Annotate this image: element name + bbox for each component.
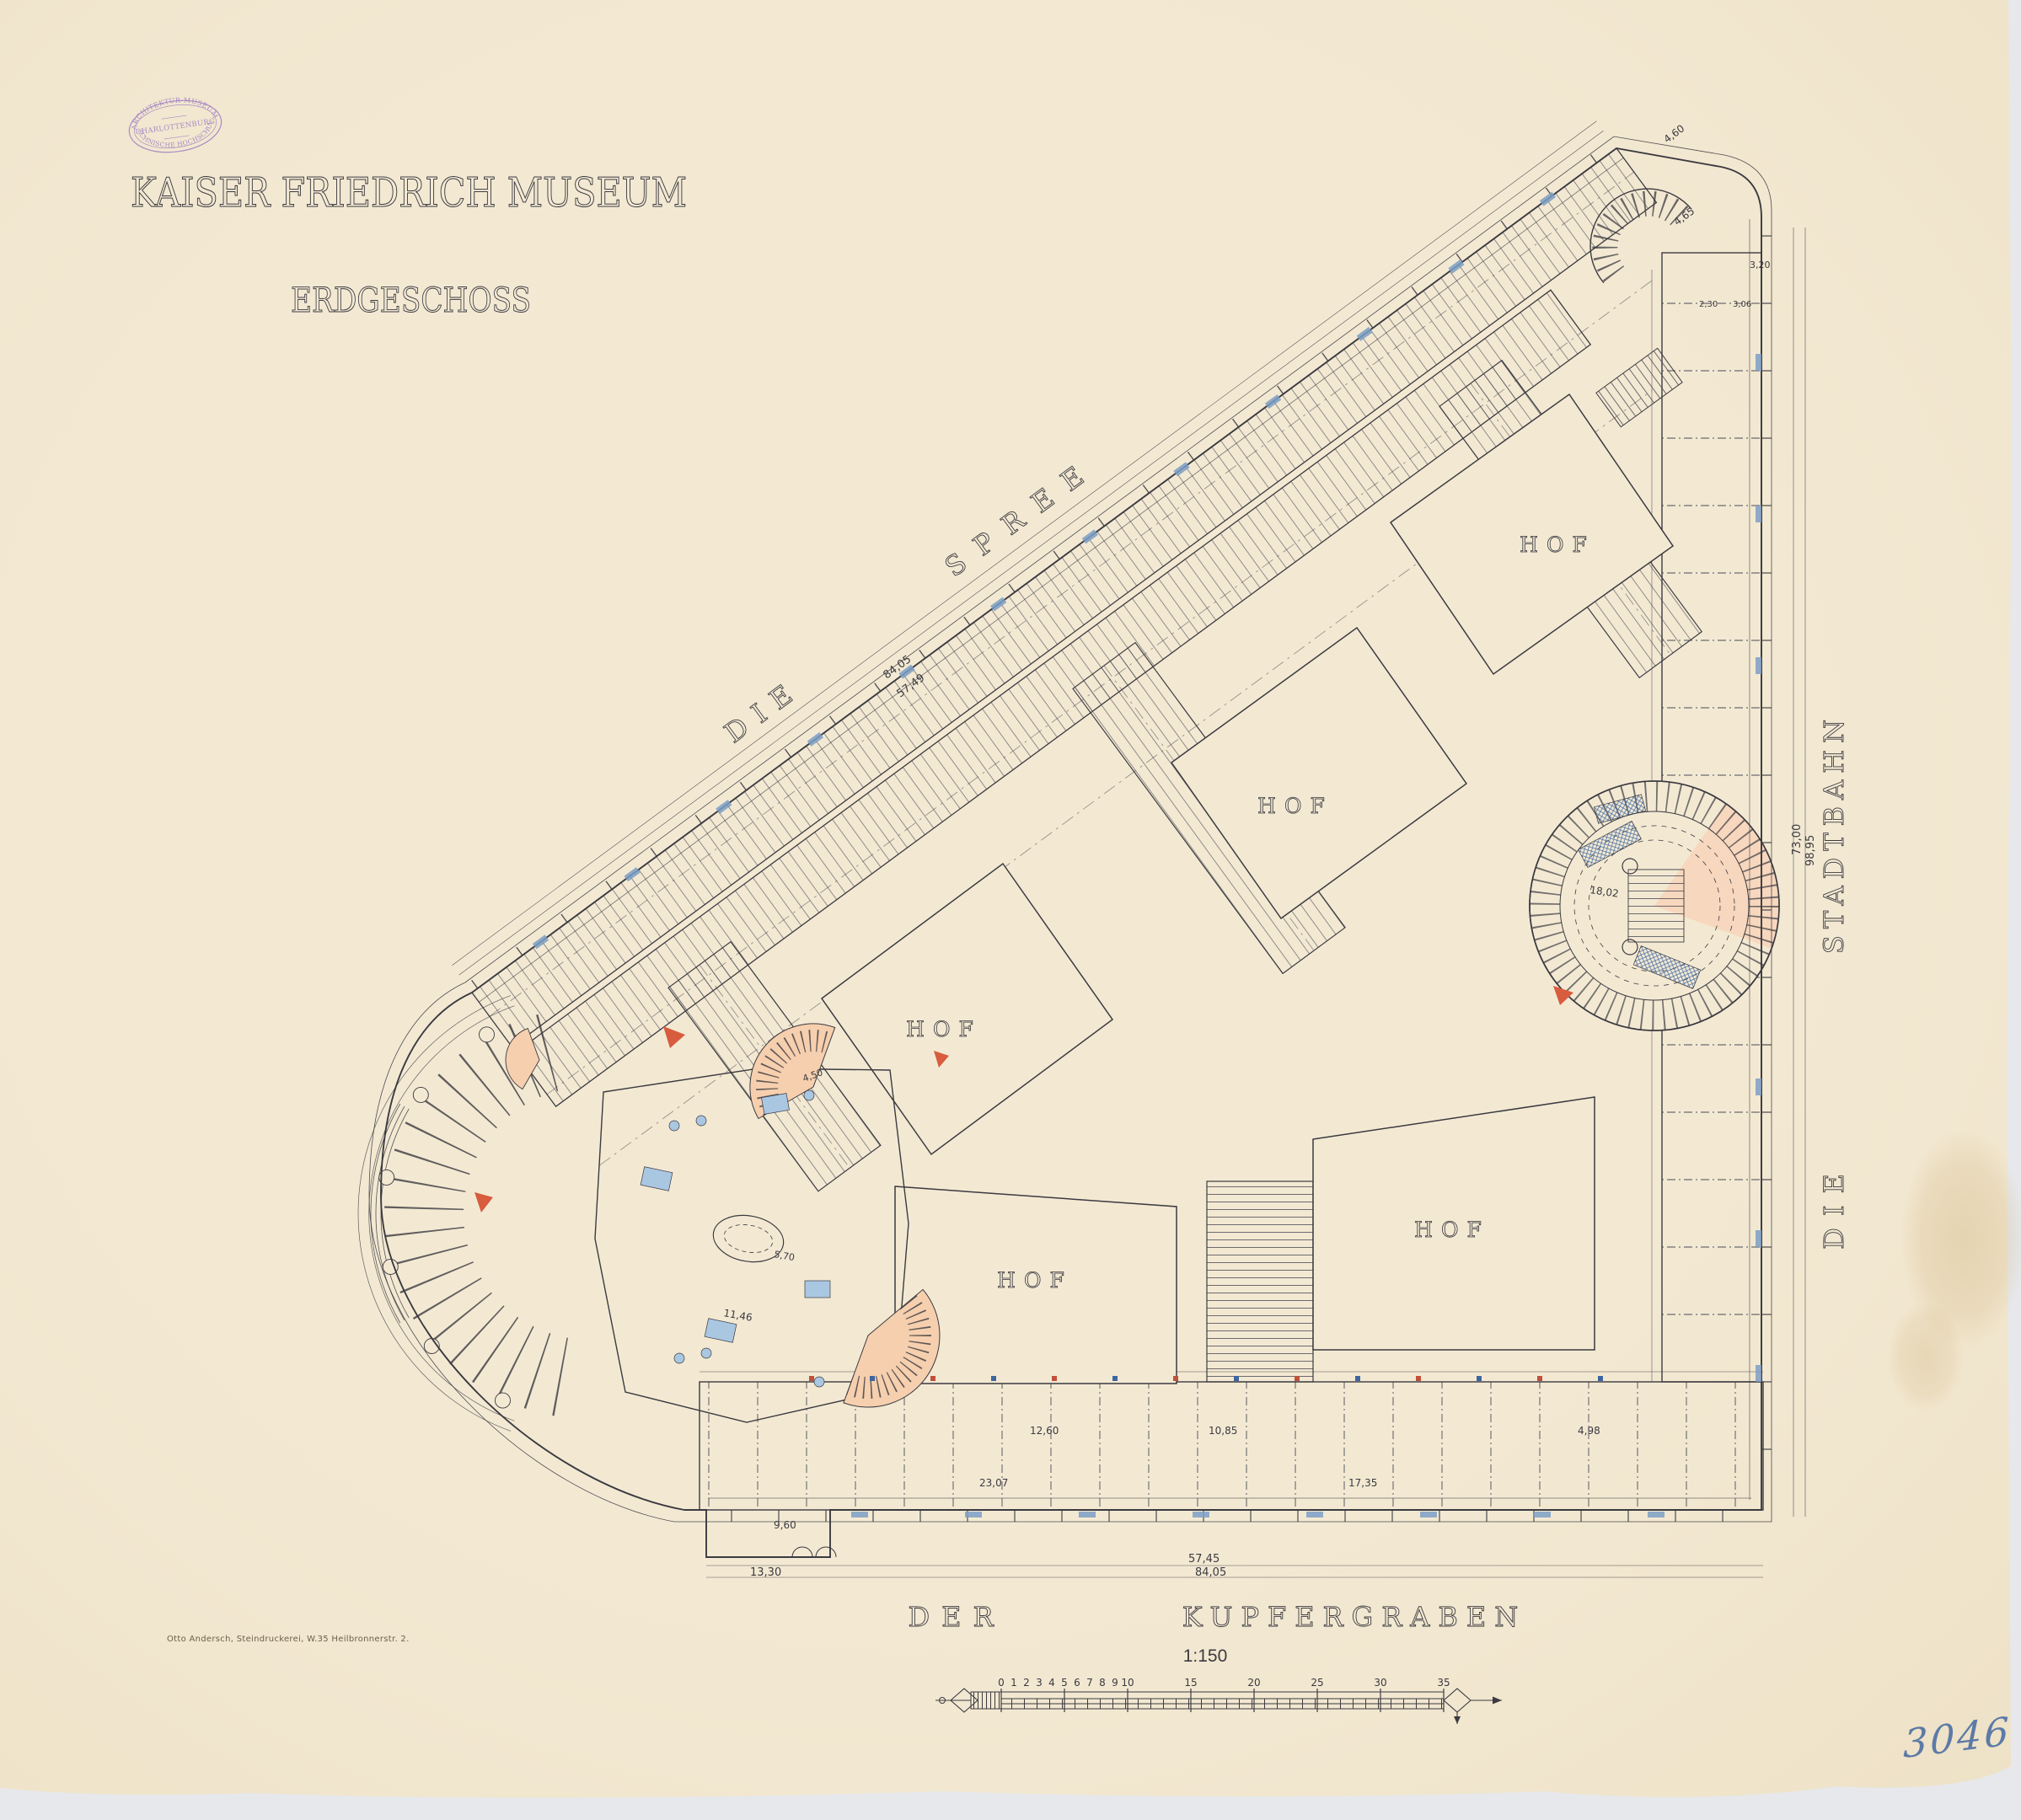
courtyard-label: HOF <box>1414 1218 1490 1242</box>
courtyard-label: HOF <box>906 1017 982 1041</box>
scale-tick: 1 <box>1010 1677 1017 1689</box>
scale-tick: 5 <box>1061 1677 1068 1689</box>
scale-tick: 0 <box>998 1677 1005 1689</box>
dimension-label: 4,98 <box>1578 1425 1600 1437</box>
street-label-stadtbahn-article: DIE <box>1818 1162 1850 1250</box>
dimension-label: 12,60 <box>1030 1425 1059 1437</box>
dimension-label: 73,00 <box>1791 824 1804 855</box>
courtyard-label: HOF <box>1520 533 1595 557</box>
scale-tick: 15 <box>1184 1677 1197 1689</box>
printer-imprint: Otto Andersch, Steindruckerei, W.35 Heil… <box>167 1635 410 1644</box>
scale-tick: 10 <box>1121 1677 1134 1689</box>
dimension-label: 57,45 <box>1188 1553 1220 1566</box>
dimension-label: 3,06 <box>1733 300 1751 309</box>
drawing-title: KAISER FRIEDRICH MUSEUM <box>131 169 687 217</box>
scale-tick: 8 <box>1099 1677 1106 1689</box>
scanned-drawing: ARCHITEKTUR-MUSEUM CHARLOTTENBURG TECHNI… <box>0 0 2021 1820</box>
scale-tick: 30 <box>1374 1677 1386 1689</box>
central-staircase <box>1207 1181 1313 1382</box>
paper-stain <box>1888 1302 1964 1411</box>
courtyard-label: HOF <box>997 1268 1073 1293</box>
dimension-label: 17,35 <box>1348 1477 1377 1489</box>
dimension-label: 13,30 <box>750 1566 781 1579</box>
scale-tick: 20 <box>1247 1677 1260 1689</box>
stair-run <box>1628 870 1684 942</box>
scale-tick: 3 <box>1036 1677 1043 1689</box>
scale-tick: 4 <box>1048 1677 1055 1689</box>
scale-tick: 25 <box>1311 1677 1323 1689</box>
scale-tick: 6 <box>1074 1677 1080 1689</box>
street-label-stadtbahn-name: STADTBAHN <box>1818 713 1850 954</box>
dimension-label: 3,20 <box>1750 260 1771 270</box>
scale-ratio-label: 1:150 <box>1183 1646 1228 1666</box>
dimension-label: 9,60 <box>774 1519 796 1531</box>
scale-tick: 2 <box>1023 1677 1030 1689</box>
floor-label: ERDGESCHOSS <box>291 281 531 320</box>
scale-tick: 7 <box>1086 1677 1093 1689</box>
dimension-label: 84,05 <box>1195 1566 1226 1579</box>
dimension-label: 23,07 <box>979 1477 1008 1489</box>
floorplan-svg: ARCHITEKTUR-MUSEUM CHARLOTTENBURG TECHNI… <box>0 0 2021 1820</box>
dimension-label: 98,95 <box>1804 835 1817 866</box>
street-label-kupfergraben-article: DER <box>908 1601 1005 1633</box>
dimension-label: 2,30 <box>1699 300 1718 309</box>
scale-tick: 35 <box>1437 1677 1450 1689</box>
dimension-label: 10,85 <box>1209 1425 1237 1437</box>
street-label-kupfergraben-name: KUPFERGRABEN <box>1182 1601 1527 1633</box>
courtyard-label: HOF <box>1257 794 1333 818</box>
scale-tick: 9 <box>1112 1677 1118 1689</box>
